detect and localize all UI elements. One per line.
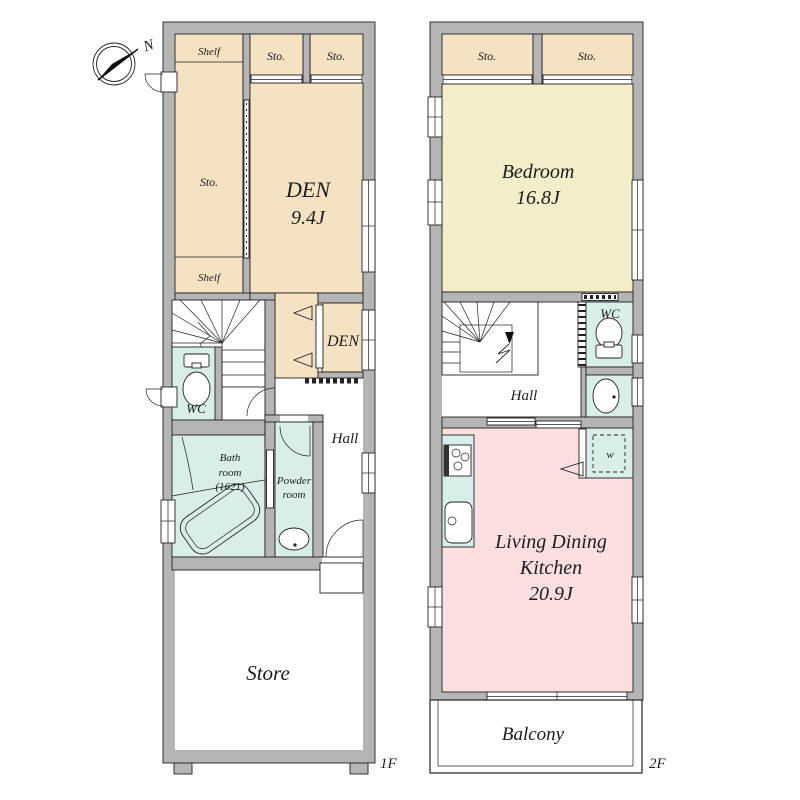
- f2-basin: [586, 375, 633, 417]
- f1-storage-column: Shelf Sto. Shelf: [175, 34, 243, 293]
- f1-wall-bath-top: [172, 420, 265, 435]
- f1-toilet-tank-notch: [192, 363, 201, 368]
- f2-hatch-strip-h: [582, 294, 618, 301]
- f1-bath-label-1: Bath: [220, 452, 241, 464]
- f2-closet-right-label: Sto.: [578, 49, 596, 63]
- f1-hall-label: Hall: [331, 431, 359, 447]
- f1-powder-sink-drain: [293, 543, 296, 546]
- floor-plan-drawing: N Shelf Sto. Shelf: [0, 0, 800, 800]
- f1-bath-label-3: (1621): [215, 481, 245, 493]
- f1-bath-sliding-door: [267, 450, 274, 508]
- f1-closet-right-label: Sto.: [327, 49, 345, 63]
- f1-footing-right: [350, 763, 368, 774]
- f2-washer-sliding-door: [579, 429, 586, 478]
- f1-wall-corridor-left: [250, 293, 275, 300]
- f2-wall-basin-left: [581, 367, 586, 417]
- f1-den-size-label: 9.4J: [291, 207, 326, 229]
- f1-wall-den-small-bottom: [318, 372, 363, 378]
- f2-closet-left-label: Sto.: [478, 49, 496, 63]
- f2-wall-wc-basin: [586, 367, 633, 375]
- f2-washer-label: w: [606, 449, 614, 461]
- f1-powder-sink: [279, 528, 309, 550]
- f2-closet-divider-wall: [533, 34, 542, 84]
- f1-floor-label: 1F: [380, 756, 398, 772]
- f1-den-label: DEN: [285, 177, 331, 202]
- floor1-plan: Shelf Sto. Shelf Sto. Sto. DEN: [145, 22, 398, 774]
- f1-bathroom: Bath room (1621): [172, 435, 265, 559]
- f1-wc: WC: [172, 347, 217, 420]
- f2-bedroom-size-label: 16.8J: [516, 187, 561, 209]
- f1-entry-door-opening-top: [161, 72, 177, 92]
- f1-closet-left-label: Sto.: [267, 49, 285, 63]
- f2-ldk-label-2: Kitchen: [519, 557, 582, 579]
- f1-bath-label-2: room: [219, 467, 242, 479]
- f1-powder-room: Powder room: [275, 422, 313, 557]
- f1-wall-den-small-top: [318, 293, 363, 303]
- f2-basin-faucet: [612, 395, 615, 398]
- f1-closet-divider-wall: [303, 34, 310, 83]
- f1-storage-room: [175, 34, 243, 293]
- f1-wall-powder-hall: [313, 422, 323, 557]
- floor-plan-page: N Shelf Sto. Shelf: [0, 0, 800, 800]
- f2-staircase: [442, 302, 538, 375]
- f1-powder-label-2: room: [283, 489, 306, 501]
- f2-stove-edge: [444, 445, 449, 476]
- f1-entry-door-arc-top: [145, 74, 163, 92]
- f2-bedroom: Bedroom 16.8J: [442, 84, 633, 292]
- f1-sliding-partition: [244, 100, 249, 258]
- f1-shelf-bottom-label: Shelf: [198, 272, 222, 284]
- f1-store-label: Store: [246, 661, 290, 685]
- f2-washer-space: w: [586, 428, 633, 478]
- f2-wc-label: WC: [600, 306, 620, 321]
- f1-shelf-top-label: Shelf: [198, 46, 222, 58]
- f2-bedroom-label: Bedroom: [502, 161, 575, 183]
- f2-hall-label: Hall: [510, 388, 538, 404]
- f2-kitchen-sink: [445, 502, 472, 543]
- f1-powder-label-1: Powder: [276, 475, 312, 487]
- f2-balcony: Balcony: [430, 700, 642, 773]
- f1-den-small-sliding-door: [316, 305, 323, 368]
- f2-toilet-tank-notch: [604, 342, 614, 347]
- f2-kitchen: [442, 435, 474, 547]
- f1-footing-left: [174, 763, 192, 774]
- f1-wc-label: WC: [186, 401, 206, 416]
- f2-ldk-label-1: Living Dining: [494, 531, 607, 553]
- f1-den-small-label: DEN: [326, 333, 360, 350]
- f1-sto-label: Sto.: [200, 175, 218, 189]
- f2-floor-label: 2F: [649, 756, 667, 772]
- f1-entry-door-arc-mid: [146, 389, 163, 406]
- compass-north-label: N: [141, 37, 157, 56]
- floor2-plan: Sto. Sto. Bedroom 16.8J: [428, 22, 667, 773]
- f1-wall-wc-right: [215, 347, 222, 420]
- f1-wall-stairs-right: [265, 300, 275, 415]
- f1-store-step: [320, 563, 363, 593]
- f2-balcony-label: Balcony: [502, 724, 565, 745]
- f1-entry-door-opening-mid: [161, 387, 177, 407]
- f1-wall-below-storage: [175, 293, 250, 300]
- f1-powder-door-opening: [280, 416, 308, 422]
- f2-wc: WC: [586, 302, 633, 367]
- compass-icon: N: [93, 37, 157, 85]
- f2-ldk-size-label: 20.9J: [529, 583, 574, 605]
